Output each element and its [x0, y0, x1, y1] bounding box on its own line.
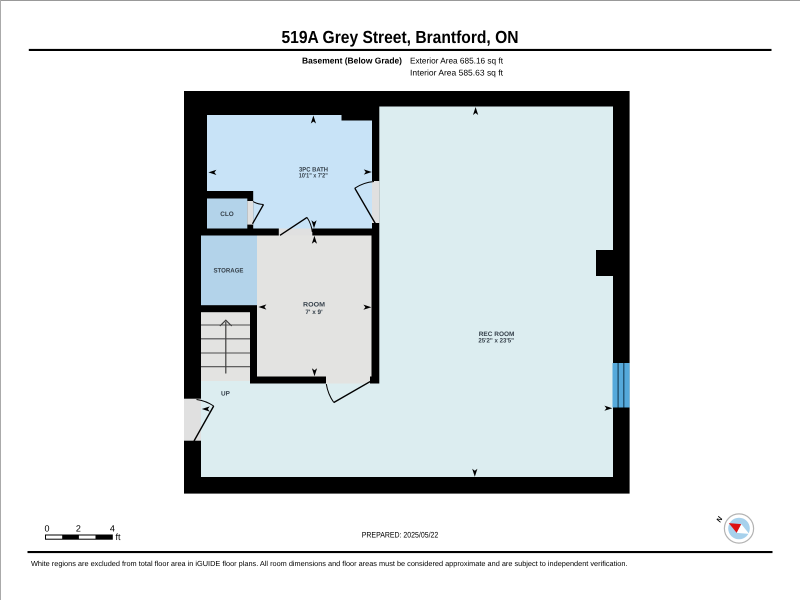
svg-text:White regions are excluded fro: White regions are excluded from total fl…	[31, 559, 628, 568]
svg-text:519A Grey Street, Brantford, O: 519A Grey Street, Brantford, ON	[282, 27, 519, 47]
svg-text:N: N	[716, 515, 725, 524]
svg-text:STORAGE: STORAGE	[214, 268, 245, 275]
svg-text:7' x 9': 7' x 9'	[305, 309, 323, 316]
svg-text:10'1" x 7'2": 10'1" x 7'2"	[299, 173, 328, 180]
svg-text:Exterior Area 685.16 sq ft: Exterior Area 685.16 sq ft	[410, 56, 504, 66]
svg-text:Basement (Below Grade): Basement (Below Grade)	[302, 56, 402, 66]
svg-text:PREPARED: 2025/05/22: PREPARED: 2025/05/22	[362, 530, 439, 539]
svg-text:2: 2	[76, 524, 81, 534]
svg-text:ROOM: ROOM	[303, 301, 325, 308]
svg-text:CLO: CLO	[220, 211, 234, 218]
svg-text:0: 0	[44, 524, 49, 534]
svg-text:ft: ft	[116, 532, 122, 542]
svg-text:25'2" x 23'5": 25'2" x 23'5"	[478, 337, 514, 344]
svg-text:4: 4	[110, 524, 115, 534]
svg-text:Interior Area 585.63 sq ft: Interior Area 585.63 sq ft	[410, 67, 504, 77]
svg-text:UP: UP	[221, 390, 231, 397]
